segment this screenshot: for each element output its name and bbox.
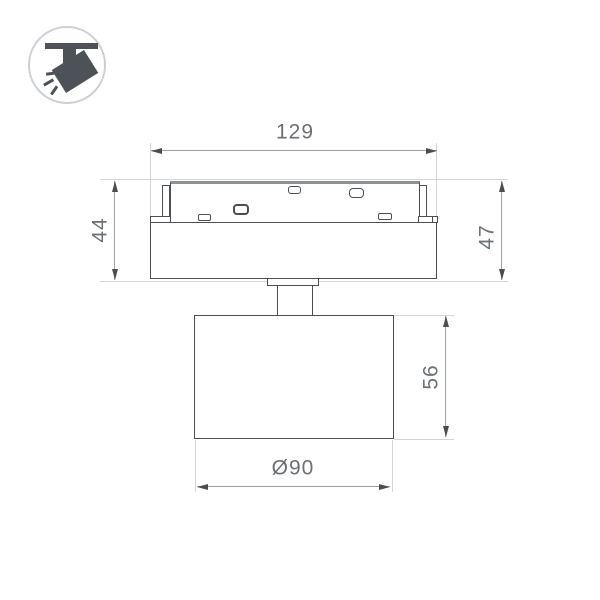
dimension-line-width	[151, 150, 437, 151]
arrowhead	[197, 484, 208, 490]
icon-lamp-head	[52, 50, 99, 93]
technical-drawing-canvas: 129 44 47 56 Ø90	[0, 0, 600, 600]
arrowhead	[443, 426, 449, 437]
extension-line	[195, 440, 196, 492]
adapter-slot	[378, 213, 392, 220]
dimension-label-head-height: 56	[421, 364, 442, 389]
icon-light-ray	[50, 85, 58, 95]
extension-line	[394, 439, 454, 440]
arrowhead	[112, 181, 118, 192]
arrowhead	[499, 269, 505, 280]
dimension-line-height-right	[501, 181, 502, 280]
arrowhead	[151, 148, 162, 154]
dimension-label-diameter: Ø90	[272, 458, 315, 479]
arrowhead	[426, 148, 437, 154]
adapter-slot	[349, 188, 364, 198]
dimension-line-head-height	[445, 316, 446, 437]
extension-line	[150, 143, 151, 223]
arrowhead	[112, 269, 118, 280]
adapter-slot	[288, 186, 301, 194]
adapter-right-tab	[419, 185, 427, 218]
dimension-line-diameter	[197, 486, 390, 487]
extension-line	[100, 179, 508, 180]
mounting-stem	[277, 285, 313, 316]
driver-housing	[150, 222, 437, 279]
arrowhead	[443, 316, 449, 327]
adapter-left-tab	[162, 185, 170, 218]
track-spotlight-icon	[28, 26, 106, 104]
adapter-slot	[233, 204, 249, 215]
icon-light-ray	[43, 78, 54, 86]
extension-line	[436, 143, 437, 223]
dimension-label-width: 129	[276, 122, 314, 143]
lamp-head	[194, 315, 394, 439]
adapter-slot	[198, 214, 211, 221]
extension-line	[392, 440, 393, 492]
dimension-line-height-left	[114, 181, 115, 280]
dimension-label-height-right: 47	[477, 224, 498, 249]
arrowhead	[499, 181, 505, 192]
arrowhead	[379, 484, 390, 490]
dimension-label-height-left: 44	[90, 217, 111, 242]
